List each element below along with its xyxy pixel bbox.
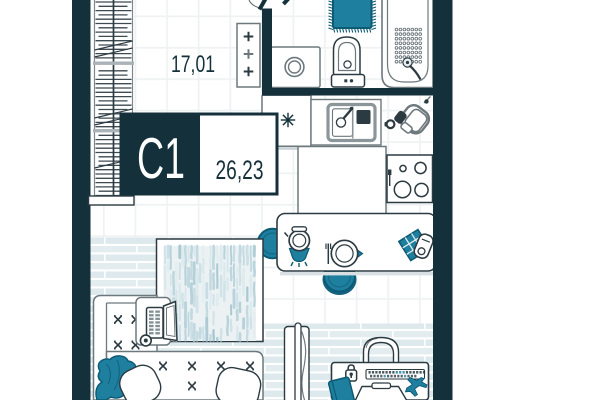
svg-text:26,23: 26,23: [216, 155, 264, 185]
svg-text:17,01: 17,01: [171, 51, 215, 78]
svg-text:C1: C1: [137, 127, 185, 191]
